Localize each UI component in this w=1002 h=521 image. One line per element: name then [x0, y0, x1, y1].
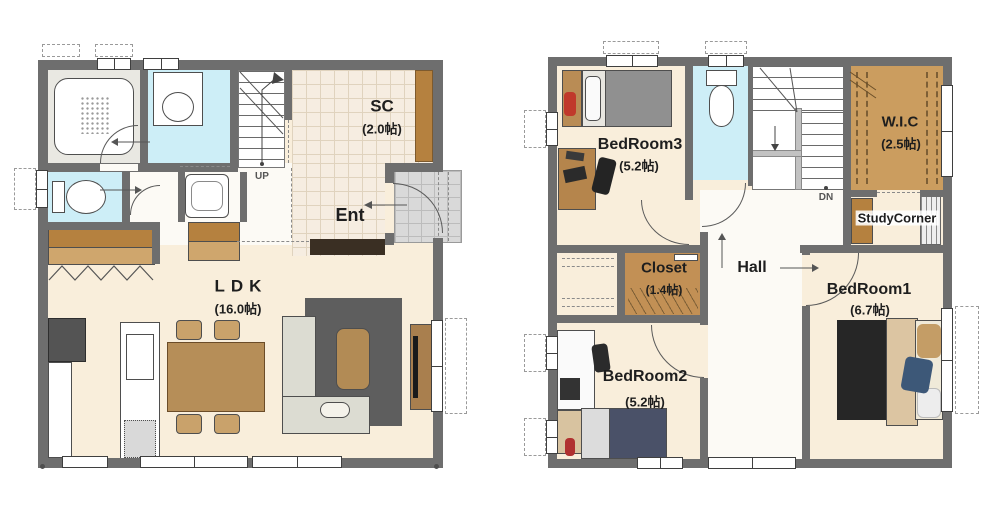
eave-outline [42, 44, 80, 57]
eave-outline [524, 418, 546, 456]
room-label-study-corner: StudyCorner [856, 211, 939, 226]
washroom-door-arrowhead [111, 138, 118, 146]
eave-outline [14, 168, 36, 210]
hall-door-arrowhead [812, 264, 819, 272]
floor-plan-canvas: SC (2.0帖) Ent LDK (16.0帖) UP [0, 0, 1002, 521]
stairs-down-label: DN [819, 193, 833, 203]
room-label-bedroom3: BedRoom3 [598, 137, 682, 153]
room-label-closet: Closet [641, 261, 687, 276]
room-label-bedroom1: BedRoom1 [827, 282, 911, 298]
eave-outline [603, 41, 659, 54]
room-area-bedroom2: (5.2帖) [625, 396, 665, 409]
room-label-wic: W.I.C [882, 115, 919, 130]
room-area-sc: (2.0帖) [362, 123, 402, 136]
toilet-door-arrowhead [135, 186, 142, 194]
entrance-door-arrowhead [364, 201, 372, 209]
eave-outline [524, 334, 546, 372]
stair-down-arrowhead [771, 144, 779, 151]
eave-outline [524, 110, 546, 148]
room-label-hall: Hall [737, 260, 766, 276]
room-area-bedroom1: (6.7帖) [850, 304, 890, 317]
room-label-ldk: LDK [215, 278, 268, 295]
room-label-sc: SC [370, 98, 394, 115]
stair-up-arrowhead [272, 72, 284, 84]
eave-outline [95, 44, 133, 57]
toilet-2f-arrowhead [718, 233, 726, 240]
room-area-bedroom3: (5.2帖) [619, 160, 659, 173]
room-area-closet: (1.4帖) [646, 284, 683, 296]
room-area-wic: (2.5帖) [881, 138, 921, 151]
eave-outline [705, 41, 747, 54]
room-label-bedroom2: BedRoom2 [603, 369, 687, 385]
eave-outline [955, 306, 979, 414]
room-area-ldk: (16.0帖) [215, 303, 262, 316]
room-label-ent: Ent [336, 206, 365, 224]
stairs-up-label: UP [255, 172, 269, 182]
